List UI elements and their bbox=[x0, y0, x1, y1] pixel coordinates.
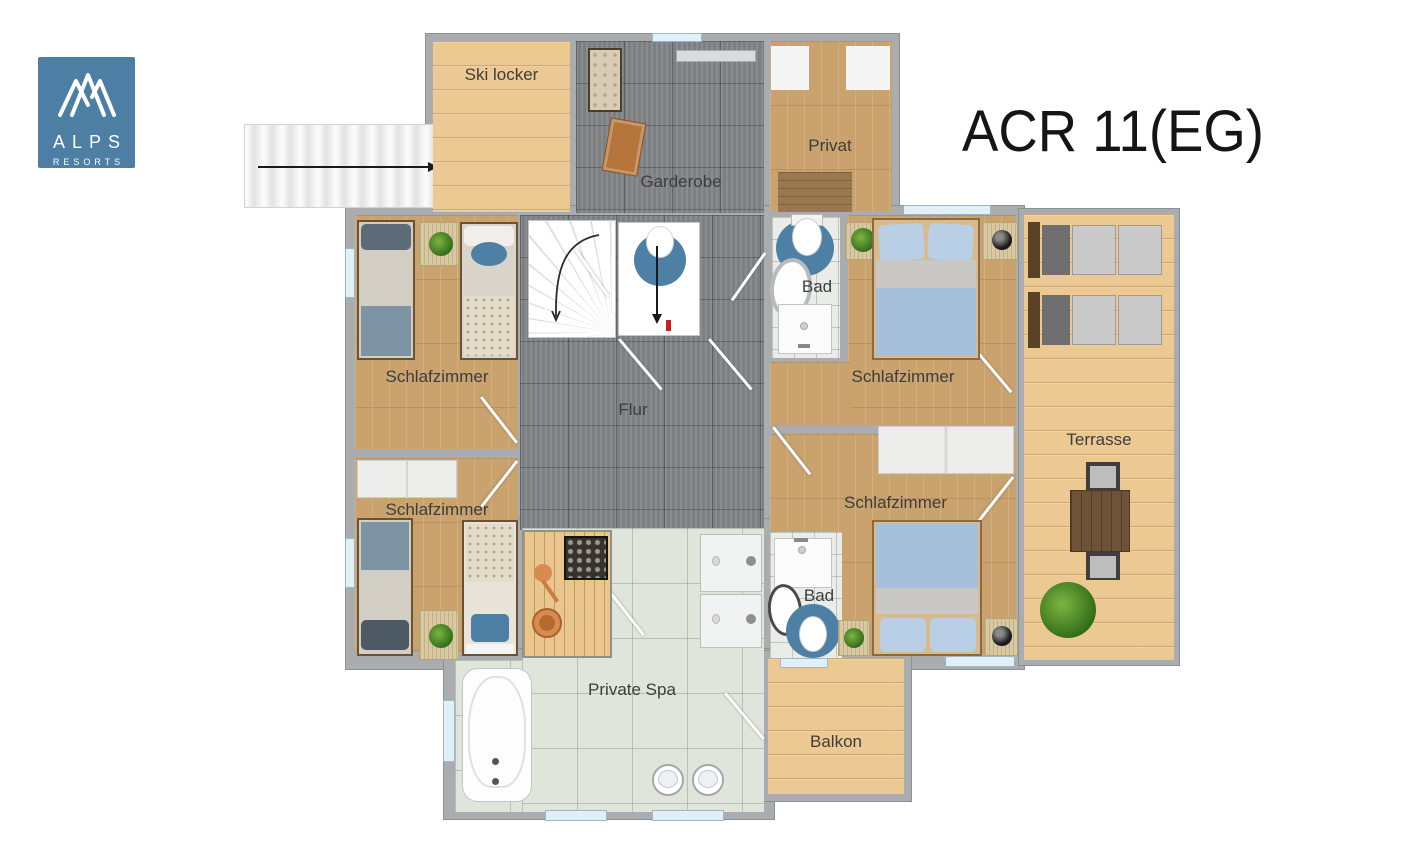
logo-text-alps: ALPS bbox=[38, 132, 135, 153]
bed-footboard bbox=[466, 644, 514, 654]
bed-pillow bbox=[930, 618, 976, 652]
room-label-schlafzimmer-tr: Schlafzimmer bbox=[838, 367, 968, 387]
plant-icon bbox=[429, 232, 453, 256]
lounger-backrest bbox=[1042, 295, 1070, 345]
plant-pot-icon bbox=[992, 230, 1012, 250]
faucet-icon bbox=[746, 556, 756, 566]
toilet-icon bbox=[792, 218, 822, 256]
room-label-privat: Privat bbox=[768, 136, 892, 156]
dining-table bbox=[1070, 490, 1130, 552]
logo-text-resorts: RESORTS bbox=[38, 157, 135, 167]
bed-blanket bbox=[361, 306, 411, 356]
interior-staircase bbox=[528, 220, 616, 338]
bed-pillow-round bbox=[471, 242, 507, 266]
room-label-balkon: Balkon bbox=[776, 732, 896, 752]
shower-faucet-top bbox=[798, 344, 810, 348]
privat-rug bbox=[778, 172, 852, 212]
sun-lounger bbox=[1028, 292, 1168, 348]
window-spa-left bbox=[443, 700, 455, 762]
vanity-drain bbox=[712, 556, 720, 566]
sun-lounger bbox=[1028, 222, 1168, 278]
stairs-curve-arrow-icon bbox=[529, 221, 617, 339]
window-schlafzimmer-bl-left bbox=[345, 538, 355, 588]
coat-rack bbox=[676, 50, 756, 62]
bed-blanket-dotted bbox=[464, 296, 514, 356]
lounger-cushion bbox=[1072, 225, 1116, 275]
room-label-garderobe: Garderobe bbox=[600, 172, 762, 192]
alps-mountains-icon bbox=[52, 67, 122, 119]
sauna-bucket-inner bbox=[539, 615, 555, 631]
shower-head-bottom bbox=[794, 538, 808, 542]
plant-icon bbox=[429, 624, 453, 648]
bed-fold bbox=[876, 260, 976, 288]
chair-seat bbox=[1090, 466, 1116, 488]
bed-pillow bbox=[927, 223, 974, 261]
bed-pillow bbox=[880, 618, 926, 652]
lounger-cushion bbox=[1118, 295, 1162, 345]
bed-fold bbox=[876, 588, 978, 614]
lounger-cushion bbox=[1118, 225, 1162, 275]
privat-closet-right bbox=[846, 46, 890, 90]
plant-icon bbox=[844, 628, 864, 648]
window-bad-bottom bbox=[780, 658, 828, 668]
floorplan-canvas: Ski locker Garderobe Privat Bad Schlafzi… bbox=[0, 0, 1422, 852]
stairs-down-arrow-line bbox=[656, 246, 658, 314]
bed-pillow bbox=[361, 224, 411, 250]
vanity-drain bbox=[712, 614, 720, 624]
bathtub-faucet bbox=[492, 778, 499, 785]
wardrobe bbox=[878, 426, 1014, 474]
bed-blanket bbox=[361, 522, 409, 570]
round-chair-seat bbox=[646, 226, 674, 258]
room-label-bad-top: Bad bbox=[790, 277, 844, 297]
round-sink-basin bbox=[698, 770, 718, 788]
window-schlafzimmer-tr-top bbox=[903, 205, 991, 215]
window-garderobe-top bbox=[652, 33, 702, 42]
entry-arrow-line bbox=[258, 166, 430, 168]
room-label-private-spa: Private Spa bbox=[552, 680, 712, 700]
stair-marker bbox=[666, 320, 671, 331]
lounger-cushion bbox=[1072, 295, 1116, 345]
bed-pillow bbox=[361, 620, 409, 650]
round-sink-basin bbox=[658, 770, 678, 788]
toilet-icon-bottom bbox=[799, 616, 827, 652]
alps-resorts-logo: ALPS RESORTS bbox=[38, 57, 135, 168]
window-schlafzimmer-tl-left bbox=[345, 248, 355, 298]
room-label-ski-locker: Ski locker bbox=[433, 65, 570, 85]
room-label-terrasse: Terrasse bbox=[1032, 430, 1166, 450]
bed-blanket-dotted bbox=[466, 524, 514, 582]
room-balkon-floor bbox=[768, 658, 904, 794]
bed-blanket bbox=[876, 288, 976, 356]
page-title: ACR 11(EG) bbox=[962, 98, 1264, 165]
lounger-frame bbox=[1028, 292, 1040, 348]
window-schlafzimmer-br-bottom bbox=[945, 656, 1015, 667]
window-spa-bottom-2 bbox=[652, 810, 724, 821]
room-label-schlafzimmer-bl: Schlafzimmer bbox=[355, 500, 519, 520]
sauna-heater-stones bbox=[564, 536, 608, 580]
wardrobe bbox=[357, 460, 457, 498]
plant-icon bbox=[1040, 582, 1096, 638]
room-label-flur: Flur bbox=[578, 400, 688, 420]
privat-closet-left bbox=[771, 46, 809, 90]
stairs-down-arrow-icon bbox=[652, 314, 662, 324]
chair-seat bbox=[1090, 556, 1116, 578]
room-label-schlafzimmer-tl: Schlafzimmer bbox=[355, 367, 519, 387]
window-spa-bottom-1 bbox=[545, 810, 607, 821]
bench bbox=[588, 48, 622, 112]
faucet-icon bbox=[746, 614, 756, 624]
bathtub-basin bbox=[468, 676, 526, 788]
room-label-schlafzimmer-br: Schlafzimmer bbox=[818, 493, 973, 513]
bed-pillow bbox=[878, 223, 925, 261]
plant-pot-icon bbox=[992, 626, 1012, 646]
shower-drain-bottom bbox=[798, 546, 806, 554]
bed-pillow bbox=[471, 614, 509, 642]
bathtub-drain bbox=[492, 758, 499, 765]
lounger-frame bbox=[1028, 222, 1040, 278]
room-label-bad-bottom: Bad bbox=[794, 586, 844, 606]
shower-drain-top bbox=[800, 322, 808, 330]
bed-blanket bbox=[876, 524, 978, 588]
lounger-backrest bbox=[1042, 225, 1070, 275]
